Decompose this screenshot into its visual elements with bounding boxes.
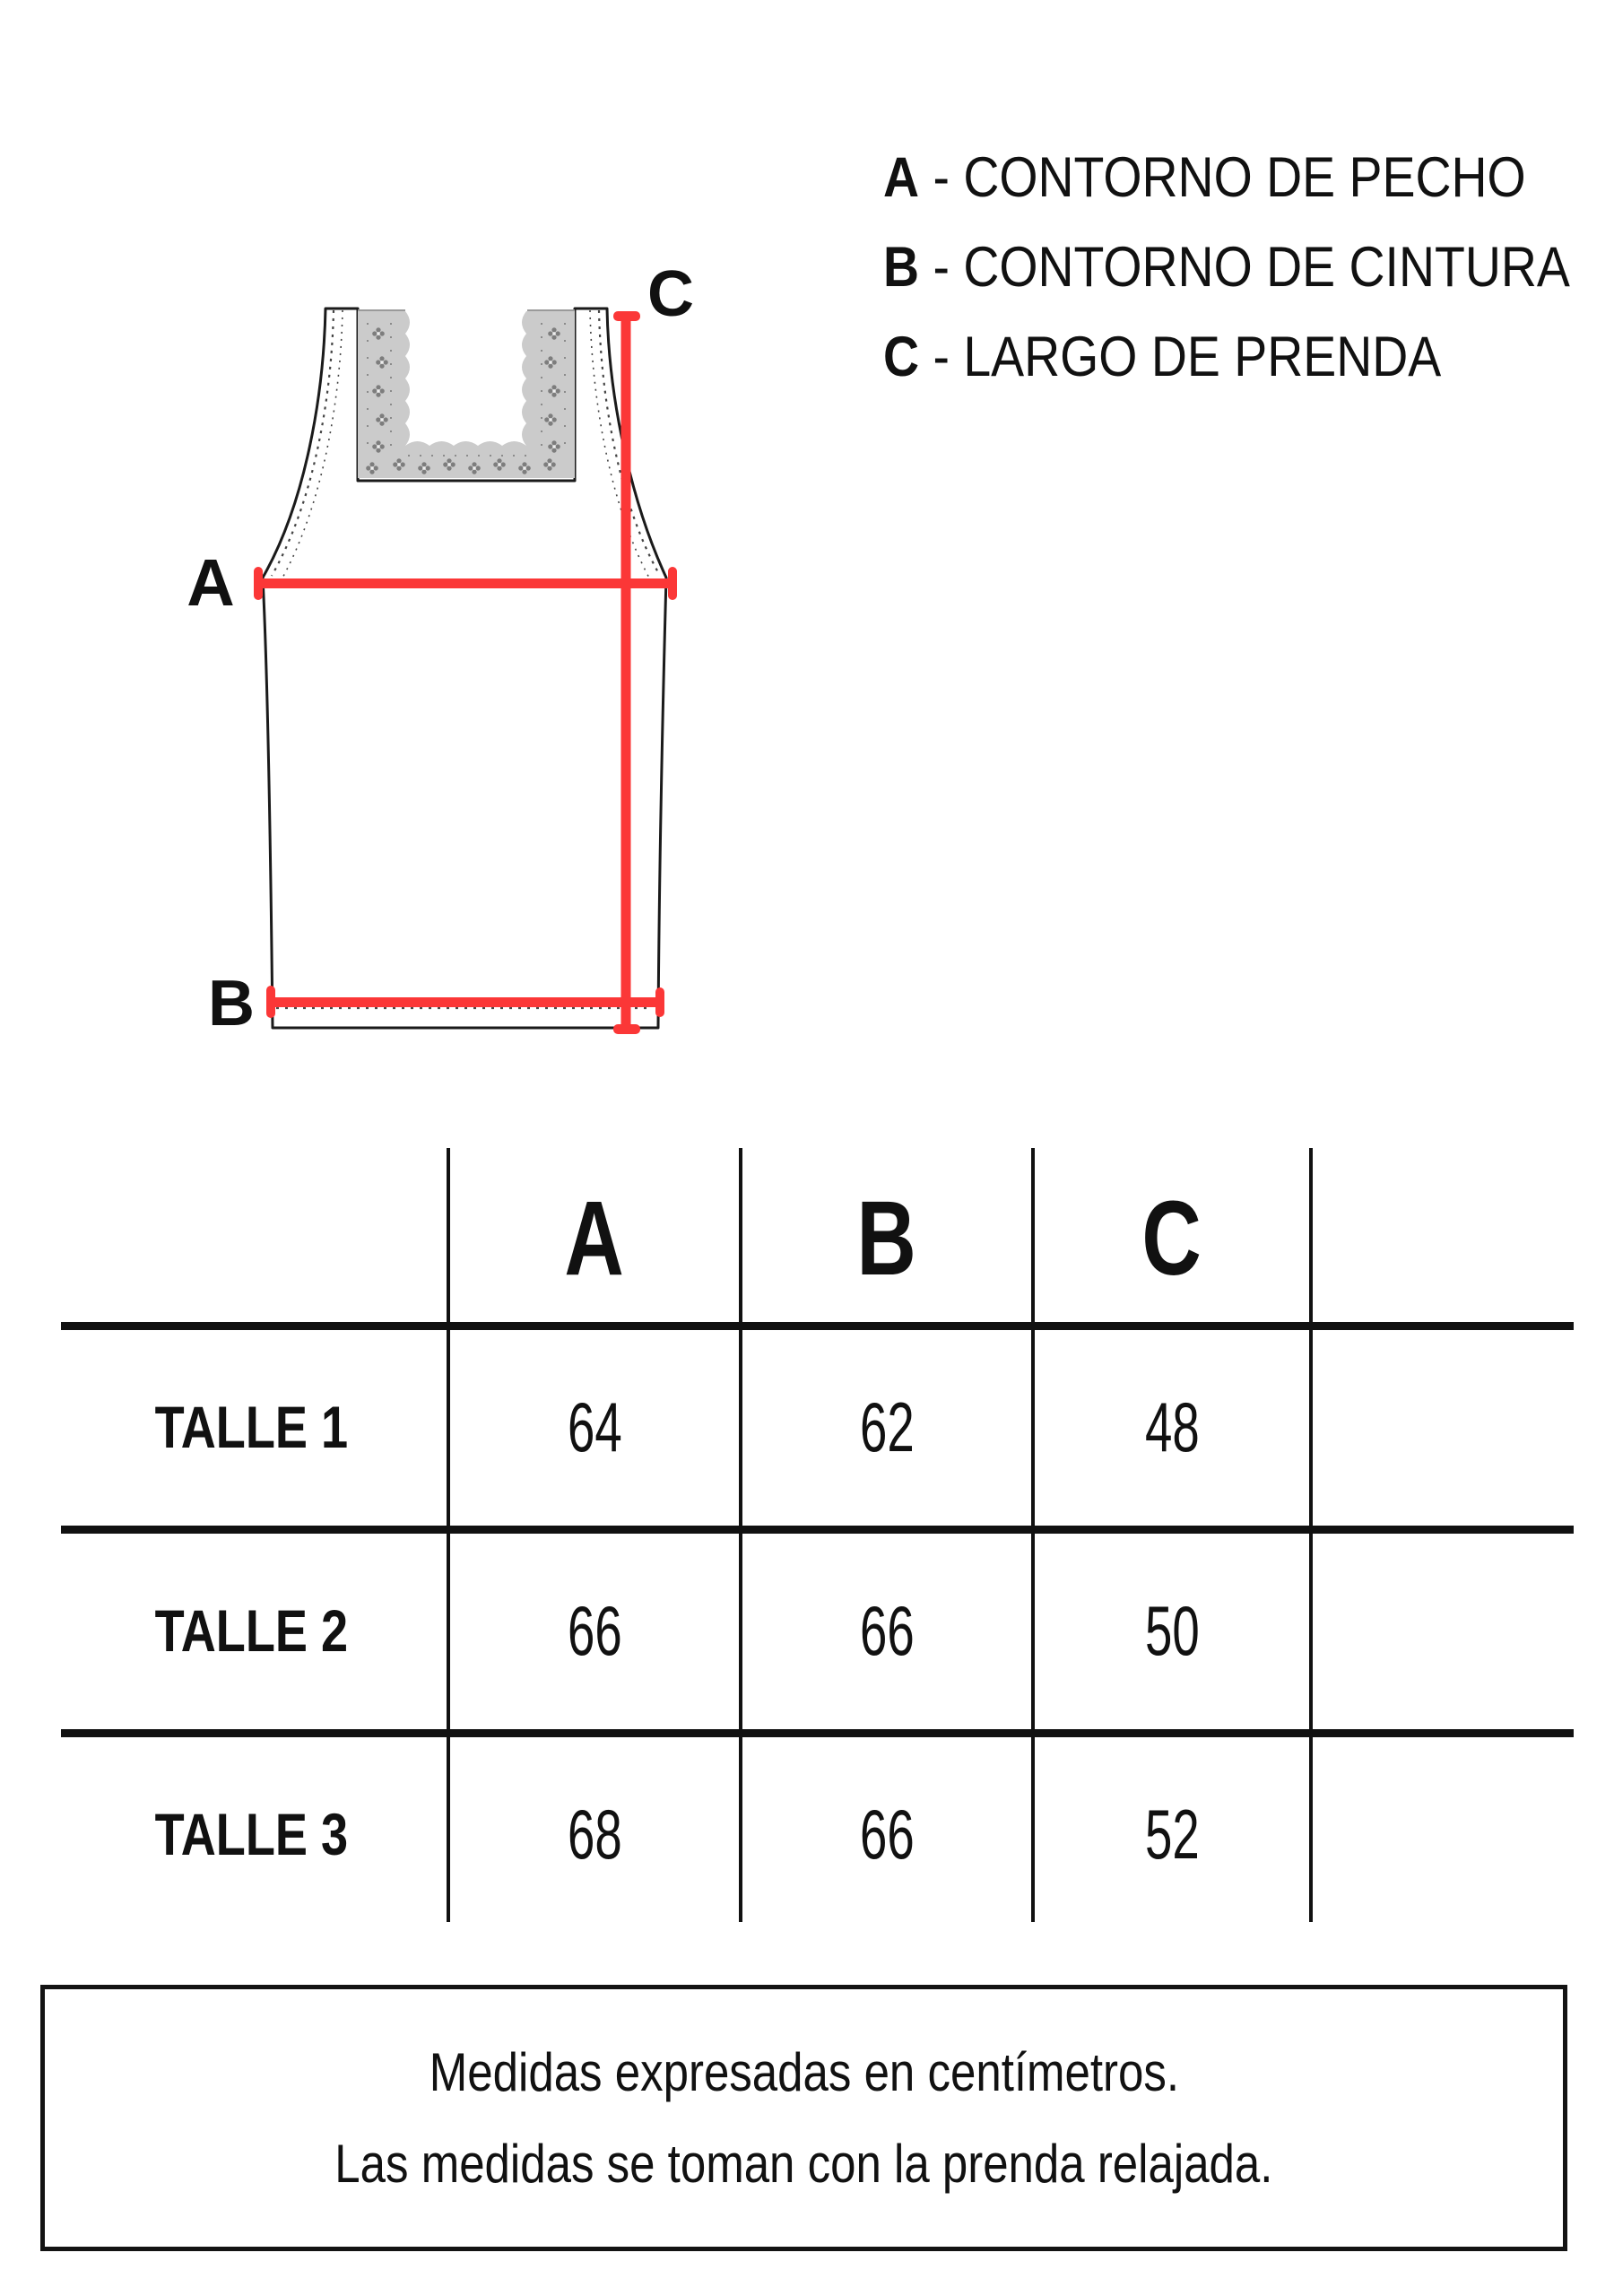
cell-talle1-a-value: 64 [568, 1373, 622, 1481]
legend-text-b: - CONTORNO DE CINTURA [933, 236, 1569, 299]
legend-key-a: A [883, 146, 919, 209]
cell-talle3-b-value: 66 [860, 1780, 915, 1888]
diagram-label-c: C [647, 258, 694, 330]
cell-talle1-b: 62 [752, 1373, 1021, 1481]
row-label-talle-3-text: TALLE 3 [154, 1780, 347, 1888]
diagram-label-a: A [187, 545, 234, 620]
note-line-2: Las medidas se toman con la prenda relaj… [252, 2137, 1356, 2191]
legend-item-c: C - LARGO DE PRENDA [883, 312, 1614, 402]
table-hline-3 [61, 1729, 1574, 1737]
legend-key-b: B [883, 236, 919, 299]
row-label-talle-3: TALLE 3 [72, 1780, 430, 1888]
table-vline-4 [1309, 1148, 1313, 1922]
size-chart-page: A B C A - CONTORNO DE PECHO B - CONTORNO… [0, 0, 1614, 2296]
row-label-talle-2: TALLE 2 [72, 1577, 430, 1684]
row-label-talle-1: TALLE 1 [72, 1373, 430, 1481]
measurement-legend: A - CONTORNO DE PECHO B - CONTORNO DE CI… [883, 133, 1614, 402]
cell-talle1-c-value: 48 [1145, 1373, 1200, 1481]
table-header-c: C [1037, 1180, 1306, 1297]
table-header-a-label: A [565, 1180, 624, 1297]
cell-talle2-c: 50 [1037, 1577, 1306, 1684]
cell-talle2-a-value: 66 [568, 1577, 622, 1684]
legend-text-a: - CONTORNO DE PECHO [933, 146, 1525, 209]
legend-item-a: A - CONTORNO DE PECHO [883, 133, 1614, 222]
lace-band [358, 311, 575, 478]
table-vline-2 [739, 1148, 742, 1922]
table-header-b-label: B [857, 1180, 916, 1297]
legend-text-c: - LARGO DE PRENDA [933, 326, 1441, 388]
cell-talle2-c-value: 50 [1145, 1577, 1200, 1684]
table-vline-1 [447, 1148, 450, 1922]
cell-talle3-a-value: 68 [568, 1780, 622, 1888]
row-label-talle-2-text: TALLE 2 [154, 1577, 347, 1684]
cell-talle3-c-value: 52 [1145, 1780, 1200, 1888]
cell-talle2-a: 66 [460, 1577, 729, 1684]
legend-key-c: C [883, 326, 919, 388]
cell-talle2-b: 66 [752, 1577, 1021, 1684]
legend-item-b: B - CONTORNO DE CINTURA [883, 222, 1614, 312]
cell-talle1-c: 48 [1037, 1373, 1306, 1481]
table-hline-2 [61, 1526, 1574, 1534]
table-vline-3 [1031, 1148, 1035, 1922]
cell-talle3-c: 52 [1037, 1780, 1306, 1888]
cell-talle3-a: 68 [460, 1780, 729, 1888]
cell-talle1-a: 64 [460, 1373, 729, 1481]
cell-talle2-b-value: 66 [860, 1577, 915, 1684]
notes-box: Medidas expresadas en centímetros. Las m… [40, 1985, 1567, 2251]
cell-talle1-b-value: 62 [860, 1373, 915, 1481]
row-label-talle-1-text: TALLE 1 [154, 1373, 347, 1481]
table-header-c-label: C [1142, 1180, 1202, 1297]
note-line-1: Medidas expresadas en centímetros. [363, 2046, 1245, 2100]
garment-diagram: A B C [126, 251, 771, 1076]
table-header-a: A [460, 1180, 729, 1297]
note-line-2-text: Las medidas se toman con la prenda relaj… [334, 2137, 1272, 2191]
cell-talle3-b: 66 [752, 1780, 1021, 1888]
table-hline-1 [61, 1322, 1574, 1330]
note-line-1-text: Medidas expresadas en centímetros. [429, 2046, 1178, 2100]
diagram-label-b: B [208, 968, 255, 1039]
table-header-b: B [752, 1180, 1021, 1297]
